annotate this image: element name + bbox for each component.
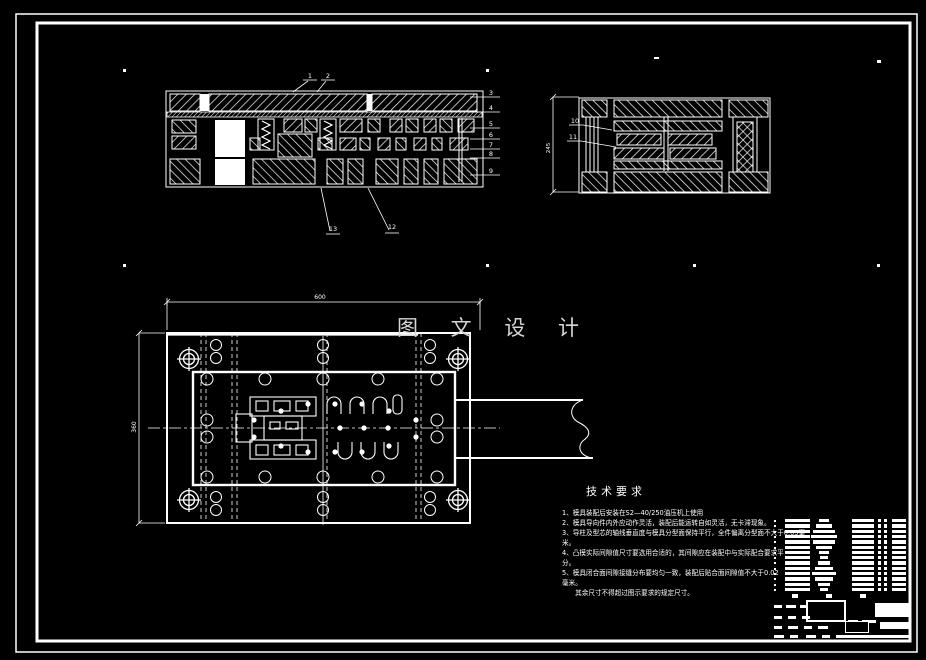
parts-list-bar (878, 540, 881, 543)
dimension-side-height (550, 94, 579, 195)
parts-list-bar (852, 572, 874, 575)
parts-list-bar (892, 546, 906, 549)
punch-cutouts (236, 395, 402, 459)
balloon-1: 1 (308, 72, 312, 80)
parts-list-bar (852, 561, 874, 564)
parts-list-bar (892, 567, 906, 570)
parts-list-bar (884, 530, 887, 533)
parts-list-bar (774, 557, 776, 559)
parts-list-bar (785, 535, 810, 538)
parts-list-bar (852, 551, 874, 554)
parts-list-bar (860, 594, 866, 598)
balloon-9: 9 (489, 167, 493, 175)
parts-list-bar (852, 577, 874, 580)
parts-list-bar (774, 552, 776, 554)
parts-list-bar (819, 551, 829, 554)
parts-list-bar (774, 578, 776, 580)
parts-list-bar (785, 530, 810, 533)
balloon-3: 3 (489, 89, 493, 97)
dimension-plan-width-value: 600 (314, 294, 326, 301)
parts-list-bar (852, 524, 874, 527)
parts-list-bar (878, 567, 881, 570)
parts-list-bar (852, 540, 874, 543)
parts-list-bar (815, 567, 833, 570)
parts-list-bar (884, 540, 887, 543)
parts-list-bar (892, 535, 906, 538)
parts-list-bar (774, 531, 776, 533)
parts-list-bar (819, 519, 829, 522)
parts-list-bar (878, 546, 881, 549)
parts-list-bar (812, 572, 836, 575)
parts-list-bar (892, 572, 906, 575)
parts-list-bar (878, 519, 881, 522)
parts-list-bar (816, 546, 832, 549)
parts-list-bar (892, 561, 906, 564)
parts-list-bar (852, 567, 874, 570)
parts-list (772, 519, 912, 604)
balloon-11: 11 (569, 133, 577, 141)
parts-list-bar (820, 588, 828, 591)
parts-list-bar (774, 520, 776, 522)
parts-list-bar (884, 535, 887, 538)
parts-list-bar (884, 556, 887, 559)
tech-requirements-title: 技术要求 (586, 483, 822, 499)
parts-list-bar (785, 556, 810, 559)
parts-list-bar (820, 556, 828, 559)
parts-list-bar (785, 524, 810, 527)
dimension-plan-height-value: 360 (131, 421, 138, 433)
strip-break (455, 400, 593, 458)
tech-requirement-line: 1、模具装配后安装在S2—40/250油压机上使用 (562, 508, 822, 518)
parts-list-bar (785, 567, 810, 570)
dimension-side-height-value: 245 (546, 142, 552, 153)
parts-list-bar (852, 535, 874, 538)
parts-list-bar (884, 588, 887, 591)
parts-list-bar (878, 530, 881, 533)
parts-list-bar (884, 577, 887, 580)
parts-list-bar (884, 561, 887, 564)
parts-list-bar (878, 535, 881, 538)
parts-list-bar (878, 583, 881, 586)
parts-list-bar (892, 577, 906, 580)
parts-list-bar (892, 583, 906, 586)
balloon-10: 10 (571, 117, 579, 125)
parts-list-bar (852, 556, 874, 559)
parts-list-bar (774, 584, 776, 586)
parts-list-bar (811, 535, 837, 538)
parts-list-bar (792, 594, 798, 598)
parts-list-bar (878, 524, 881, 527)
parts-list-bar (785, 572, 810, 575)
parts-list-bar (785, 583, 810, 586)
parts-list-bar (884, 524, 887, 527)
balloon-2: 2 (326, 72, 330, 80)
parts-list-bar (884, 567, 887, 570)
parts-list-bar (774, 562, 776, 564)
parts-list-bar (774, 589, 776, 591)
parts-list-bar (892, 588, 906, 591)
parts-list-bar (878, 577, 881, 580)
parts-list-bar (774, 536, 776, 538)
parts-list-bar (892, 524, 906, 527)
parts-list-bar (878, 556, 881, 559)
parts-list-bar (774, 573, 776, 575)
parts-list-bar (878, 551, 881, 554)
parts-list-bar (892, 530, 906, 533)
parts-list-bar (774, 541, 776, 543)
parts-list-bar (884, 546, 887, 549)
section-view-front (166, 91, 483, 187)
balloon-6: 6 (489, 131, 493, 139)
parts-list-bar (818, 561, 830, 564)
parts-list-bar (884, 519, 887, 522)
parts-list-bar (785, 519, 810, 522)
parts-list-bar (815, 577, 833, 580)
balloon-4: 4 (489, 104, 493, 112)
parts-list-bar (785, 540, 810, 543)
parts-list-bar (785, 561, 810, 564)
parts-list-bar (813, 540, 835, 543)
parts-list-bar (774, 568, 776, 570)
parts-list-bar (785, 551, 810, 554)
parts-list-bar (813, 530, 835, 533)
parts-list-bar (852, 583, 874, 586)
parts-list-bar (892, 519, 906, 522)
parts-list-bar (785, 588, 810, 591)
balloon-8: 8 (489, 150, 493, 158)
parts-list-bar (892, 551, 906, 554)
parts-list-bar (785, 546, 810, 549)
parts-list-bar (852, 530, 874, 533)
title-block (772, 602, 912, 642)
balloon-13: 13 (329, 225, 337, 233)
parts-list-bar (892, 540, 906, 543)
parts-list-bar (892, 556, 906, 559)
balloon-5: 5 (489, 120, 493, 128)
parts-list-bar (852, 588, 874, 591)
parts-list-bar (852, 546, 874, 549)
parts-list-bar (884, 572, 887, 575)
balloon-7: 7 (489, 141, 493, 149)
parts-list-bar (884, 583, 887, 586)
parts-list-bar (852, 519, 874, 522)
watermark-text: 图 文 设 计 (397, 312, 592, 342)
parts-list-bar (774, 525, 776, 527)
parts-list-bar (818, 583, 830, 586)
parts-list-bar (878, 561, 881, 564)
parts-list-bar (816, 524, 832, 527)
parts-list-bar (774, 547, 776, 549)
parts-list-bar (785, 577, 810, 580)
parts-list-bar (826, 594, 832, 598)
parts-list-bar (884, 551, 887, 554)
parts-list-bar (878, 588, 881, 591)
parts-list-bar (878, 572, 881, 575)
balloon-12: 12 (388, 223, 396, 231)
